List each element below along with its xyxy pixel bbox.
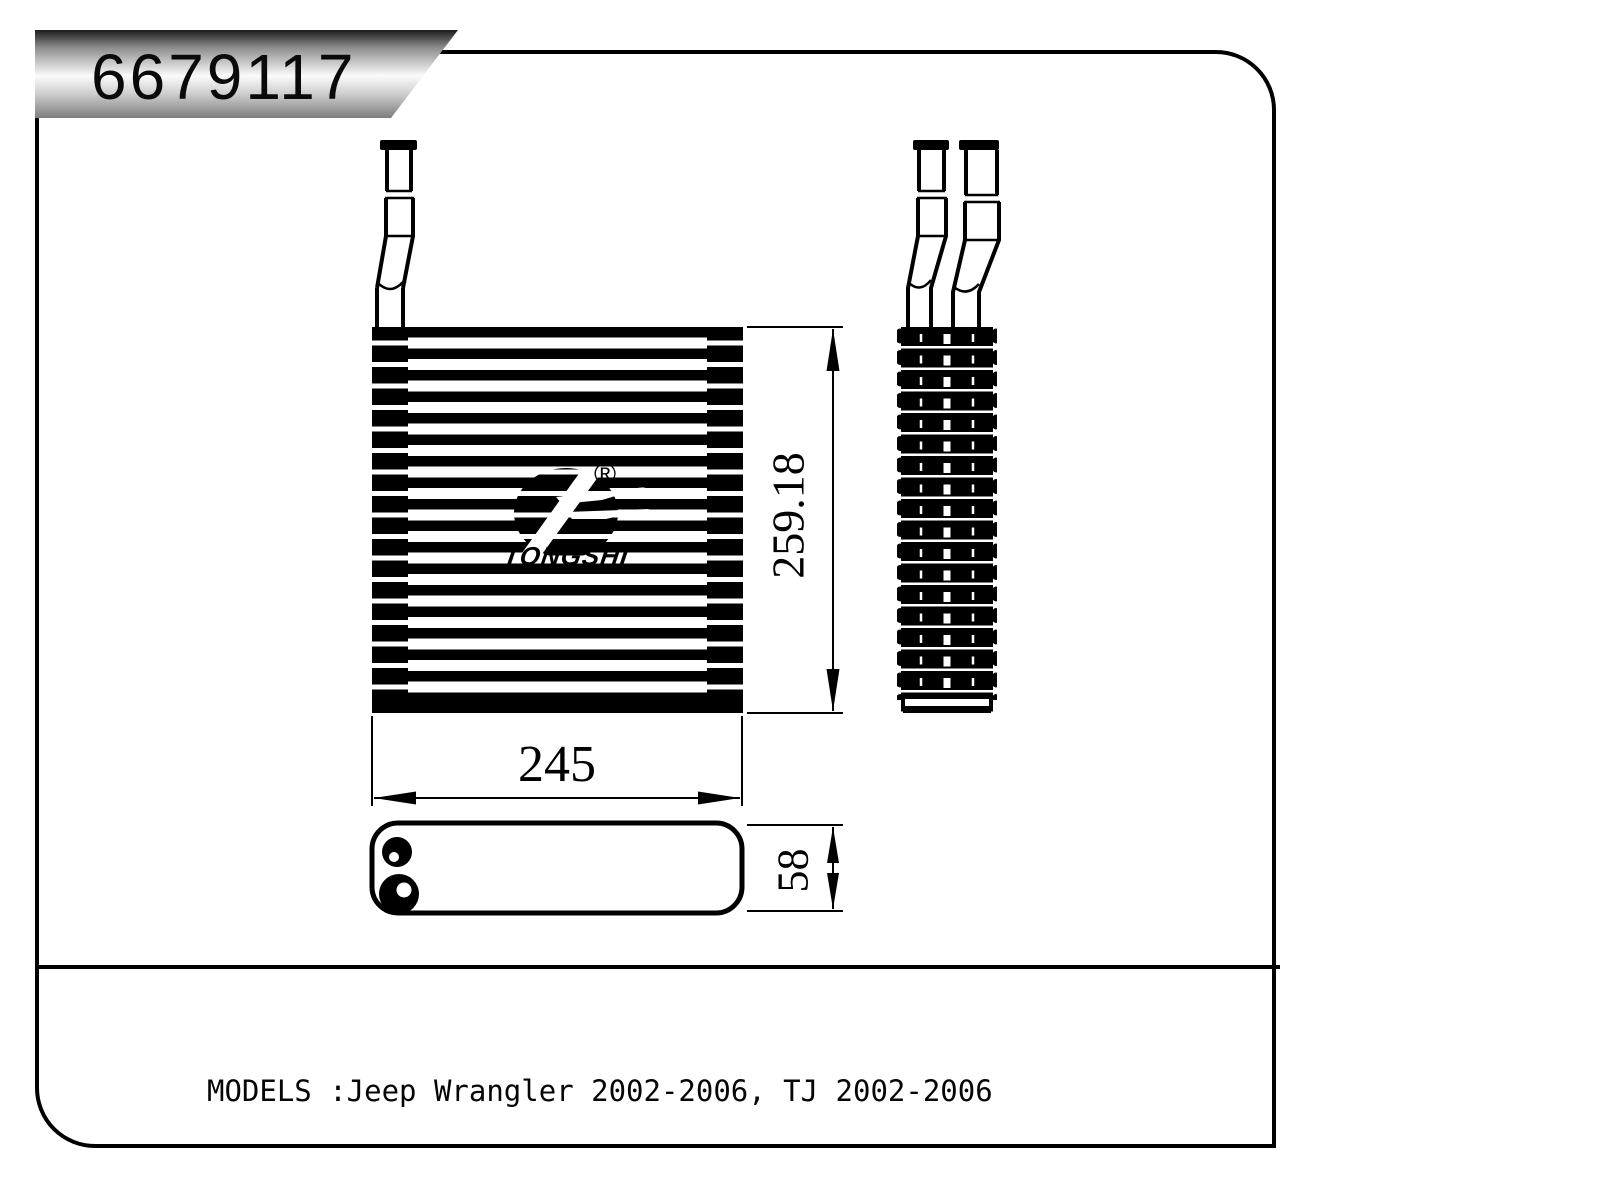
pipe-cap — [913, 140, 949, 150]
side-view — [897, 140, 1000, 713]
drawing-page: 6679117 245 259.18 58 ® TONGSHI MODELS :… — [0, 0, 1614, 1179]
dimension-width-value: 245 — [372, 735, 742, 794]
pipe-cap — [959, 140, 999, 150]
arrow-up — [827, 827, 839, 863]
core-bottom-bar — [372, 703, 743, 713]
spec-models-line: MODELS :Jeep Wrangler 2002-2006, TJ 2002… — [207, 1069, 993, 1113]
dimension-height-value: 259.18 — [762, 411, 815, 621]
pipe-port-small — [382, 837, 412, 867]
front-inlet-pipe — [377, 140, 417, 330]
pipe-cap — [380, 140, 417, 150]
arrow-up — [827, 329, 840, 371]
registered-trademark-icon: ® — [594, 458, 616, 492]
brand-name: TONGSHI — [490, 541, 642, 572]
part-number: 6679117 — [91, 40, 356, 114]
core-left-plate — [372, 327, 408, 713]
part-number-banner: 6679117 — [35, 30, 458, 118]
side-core-bottom-plate — [903, 706, 991, 713]
top-view-outline — [372, 823, 742, 913]
pipe-port-large-bore — [397, 883, 412, 898]
arrow-down — [827, 669, 840, 711]
spec-block: MODELS :Jeep Wrangler 2002-2006, TJ 2002… — [207, 981, 993, 1179]
dimension-depth-value: 58 — [768, 819, 819, 923]
pipe-port-small-bore — [389, 852, 399, 862]
side-core — [897, 327, 997, 713]
side-pipes — [908, 140, 1000, 330]
arrow-down — [827, 873, 839, 909]
core-right-plate — [707, 327, 743, 713]
